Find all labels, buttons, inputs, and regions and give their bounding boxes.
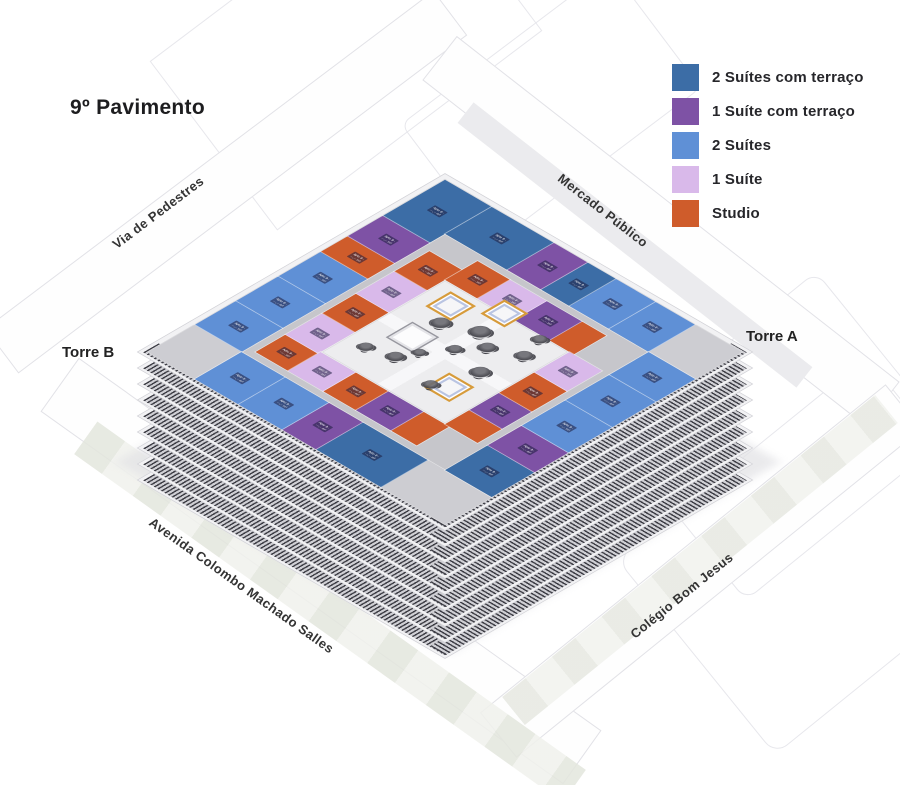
unit-label-chip: Apto 9·····,·· m² <box>273 397 294 409</box>
floorplan-page: Apto 9·····,·· m²Apto 9·····,·· m²Apto 9… <box>0 0 900 785</box>
legend-swatch <box>672 132 699 159</box>
legend: 2 Suítes com terraço1 Suíte com terraço2… <box>672 64 864 227</box>
unit-label-chip: Apto 9·····,·· m² <box>557 365 578 377</box>
unit-label-chip: Apto 9·····,·· m² <box>641 321 662 333</box>
unit-label-chip: Apto 9·····,·· m² <box>489 405 510 417</box>
unit-label-chip: Apto 9·····,·· m² <box>556 420 577 432</box>
legend-swatch <box>672 64 699 91</box>
unit-label-chip: Apto 9·····,·· m² <box>276 347 297 359</box>
unit-label-chip: Apto 9·····,·· m² <box>568 278 589 290</box>
legend-label: 1 Suíte <box>712 171 763 188</box>
legend-item-1: 2 Suítes com terraço <box>672 64 864 91</box>
unit-label-chip: Apto 9·····,·· m² <box>427 205 448 217</box>
unit-label-chip: Apto 9·····,·· m² <box>270 296 291 308</box>
unit-label-chip: Apto 9·····,·· m² <box>467 274 488 286</box>
tower-a-label: Torre A <box>746 328 798 345</box>
legend-item-4: 1 Suíte <box>672 166 864 193</box>
legend-item-3: 2 Suítes <box>672 132 864 159</box>
legend-swatch <box>672 200 699 227</box>
unit-label-chip: Apto 9·····,·· m² <box>489 232 510 244</box>
unit-label-chip: Apto 9·····,·· m² <box>522 386 543 398</box>
unit-label-chip: Apto 9·····,·· m² <box>312 420 333 432</box>
unit-label-chip: Apto 9·····,·· m² <box>381 286 402 298</box>
legend-item-5: Studio <box>672 200 864 227</box>
unit-label-chip: Apto 9·····,·· m² <box>312 272 333 284</box>
unit-label-chip: Apto 9·····,·· m² <box>311 365 332 377</box>
unit-label-chip: Apto 9·····,·· m² <box>228 320 249 332</box>
tower-b-label: Torre B <box>62 344 114 361</box>
unit-label-chip: Apto 9·····,·· m² <box>229 372 250 384</box>
legend-label: 2 Suítes <box>712 137 771 154</box>
unit-label-chip: Apto 9·····,·· m² <box>538 315 559 327</box>
unit-label-chip: Apto 9·····,·· m² <box>602 298 623 310</box>
unit-label-chip: Apto 9·····,·· m² <box>417 265 438 277</box>
page-title: 9º Pavimento <box>70 96 205 120</box>
legend-label: 2 Suítes com terraço <box>712 69 864 86</box>
unit-label-chip: Apto 9·····,·· m² <box>379 405 400 417</box>
legend-swatch <box>672 166 699 193</box>
unit-label-chip: Apto 9·····,·· m² <box>309 327 330 339</box>
legend-item-2: 1 Suíte com terraço <box>672 98 864 125</box>
unit-label-chip: Apto 9·····,·· m² <box>347 251 368 263</box>
unit-label-chip: Apto 9·····,·· m² <box>345 307 366 319</box>
legend-label: 1 Suíte com terraço <box>712 103 855 120</box>
unit-label-chip: Apto 9·····,·· m² <box>361 449 382 461</box>
unit-label-chip: Apto 9·····,·· m² <box>479 465 500 477</box>
unit-label-chip: Apto 9·····,·· m² <box>641 371 662 383</box>
unit-label-chip: Apto 9·····,·· m² <box>600 395 621 407</box>
legend-label: Studio <box>712 205 760 222</box>
unit-label-chip: Apto 9·····,·· m² <box>378 233 399 245</box>
legend-swatch <box>672 98 699 125</box>
unit-label-chip: Apto 9·····,·· m² <box>537 260 558 272</box>
unit-label-chip: Apto 9·····,·· m² <box>345 385 366 397</box>
unit-label-chip: Apto 9·····,·· m² <box>517 443 538 455</box>
